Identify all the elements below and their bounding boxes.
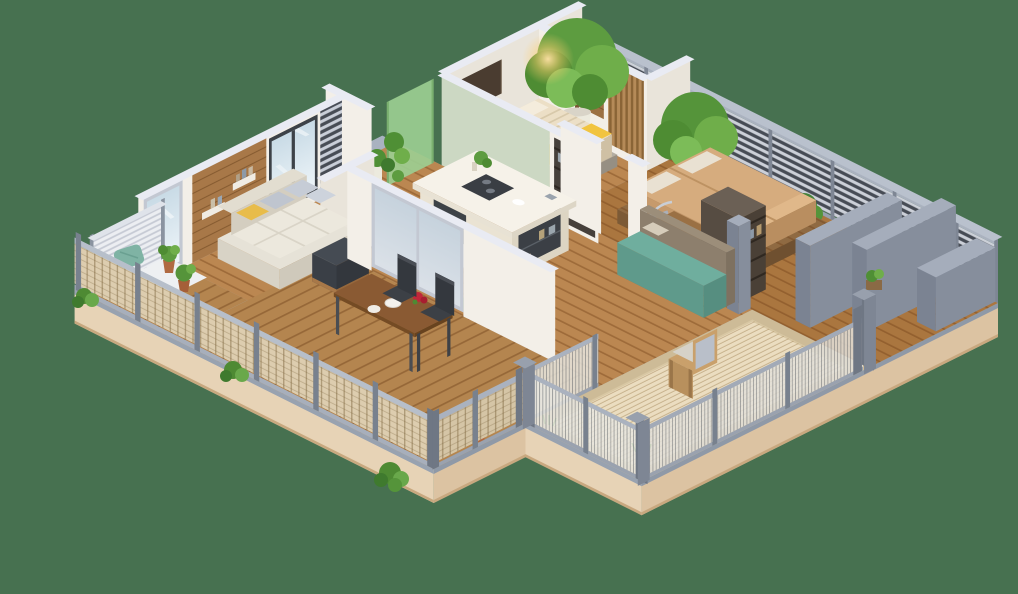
floor-plan-render bbox=[0, 0, 1018, 594]
sconce-glow bbox=[522, 33, 574, 85]
isometric-scene bbox=[0, 0, 1018, 594]
